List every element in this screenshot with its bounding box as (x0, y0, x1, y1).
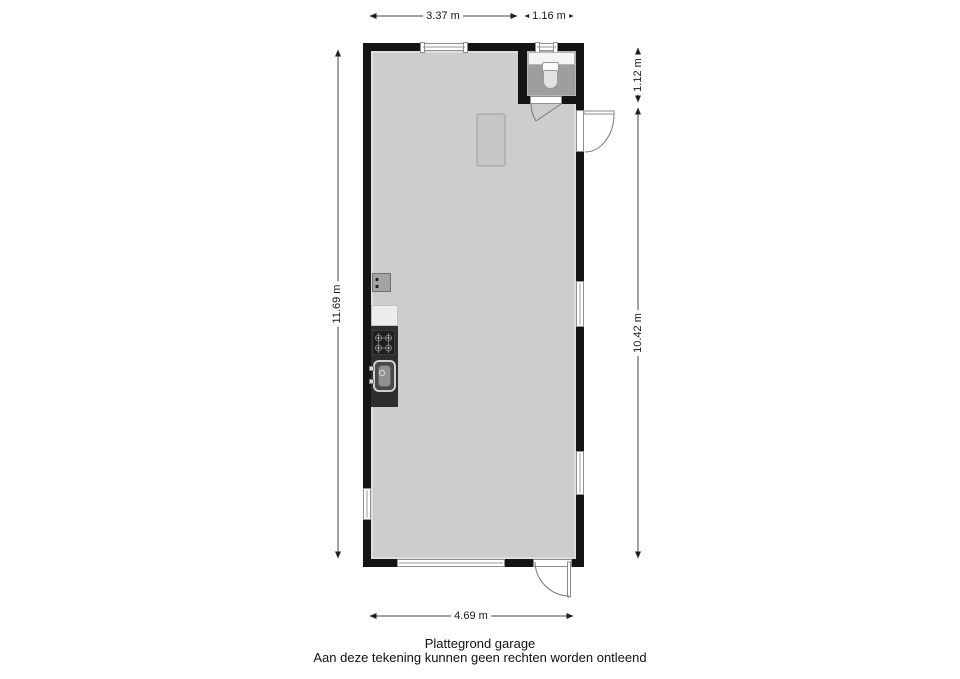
plan-disclaimer: Aan deze tekening kunnen geen rechten wo… (0, 651, 960, 665)
dimension-right-main: 10.42 m (632, 310, 644, 356)
door-leaf-bottom (568, 562, 571, 597)
garage-floor (371, 51, 576, 559)
dimension-left: 11.69 m (331, 282, 343, 327)
dimension-top-right: 1.16 m (529, 10, 569, 22)
kitchen-sink (373, 360, 396, 392)
window-top-main (421, 43, 467, 51)
wall-mounted-box (372, 273, 391, 292)
skylight (476, 113, 506, 167)
door-arc-bottom (535, 562, 569, 596)
garage-door (397, 559, 505, 567)
plan-title: Plattegrond garage (0, 637, 960, 651)
floorplan-page: 3.37 m 1.16 m 1.12 m 10.42 m 11.69 m 4.6… (0, 0, 960, 679)
faucet-handle (369, 379, 374, 384)
dimension-right-toilet: 1.12 m (632, 55, 644, 95)
window-left (363, 488, 371, 520)
door-arc-right (585, 114, 614, 152)
cooktop (372, 330, 395, 355)
door-opening-toilet (530, 96, 562, 104)
window-top-toilet (536, 43, 557, 51)
sink-basin (378, 365, 391, 387)
door-opening-right (576, 110, 584, 152)
dimension-top-left: 3.37 m (423, 10, 463, 22)
kitchen-counter-top (371, 305, 398, 326)
caption: Plattegrond garage Aan deze tekening kun… (0, 637, 960, 664)
door-leaf-right (584, 111, 614, 114)
window-right-lower (576, 451, 584, 495)
dimension-bottom: 4.69 m (451, 610, 491, 622)
window-right-upper (576, 281, 584, 327)
toilet-bowl (543, 70, 558, 89)
door-opening-bottom (533, 559, 572, 567)
faucet-handle (369, 366, 374, 371)
